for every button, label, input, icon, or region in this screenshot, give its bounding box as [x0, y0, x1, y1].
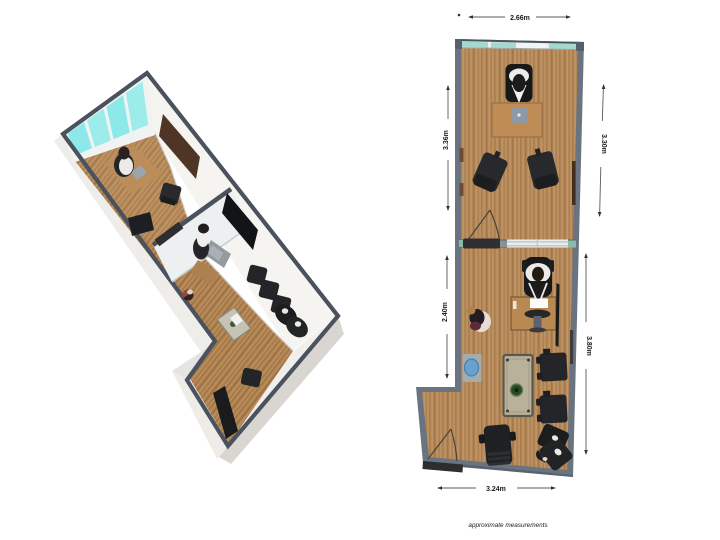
svg-text:3.30m: 3.30m [600, 134, 607, 154]
svg-text:3.24m: 3.24m [486, 486, 506, 493]
svg-text:2.66m: 2.66m [510, 15, 530, 22]
svg-text:3.80m: 3.80m [585, 336, 592, 356]
svg-text:approximate measurements: approximate measurements [468, 522, 548, 529]
svg-text:2.40m: 2.40m [442, 302, 449, 322]
svg-text:3.36m: 3.36m [443, 130, 450, 150]
